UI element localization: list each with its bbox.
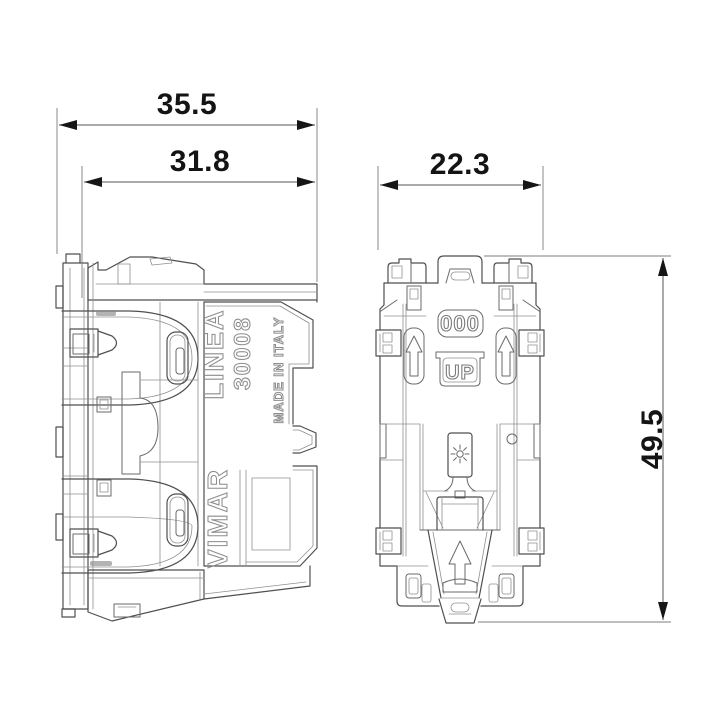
- side-view: LINEA 30008 MADE IN ITALY VIMAR: [56, 254, 317, 621]
- up-arrow-panel-right: [496, 328, 516, 384]
- front-view: 000 UP: [376, 256, 544, 623]
- engraving-origin: MADE IN ITALY: [271, 317, 286, 424]
- rocker-crossbar: [437, 497, 483, 530]
- screw-hole: [507, 434, 517, 444]
- direction-arrow-icon: [449, 541, 471, 584]
- lower-mechanism: [422, 530, 498, 602]
- up-arrow-panel-left: [404, 328, 424, 384]
- dim-value-recess-depth: 31.8: [170, 145, 230, 178]
- arrowhead: [380, 180, 398, 190]
- up-arrow-icon: [406, 336, 422, 376]
- dim-value-height: 49.5: [636, 409, 669, 469]
- side-view-contact-pocket-bottom: [62, 479, 198, 573]
- arrowhead: [297, 177, 315, 187]
- engraving-brand: VIMAR: [202, 468, 233, 568]
- marking-000-badge: 000: [438, 310, 483, 337]
- arrowhead: [59, 120, 77, 130]
- marking-000: 000: [440, 311, 480, 336]
- marking-up: UP: [445, 362, 475, 384]
- extension-line: [57, 108, 317, 282]
- arrowhead: [84, 177, 102, 187]
- tiny-engraving-mark: [96, 311, 116, 316]
- arrowhead: [658, 602, 668, 620]
- arrowhead: [523, 180, 541, 190]
- dim-value-width: 22.3: [430, 148, 490, 181]
- lamp-plate: [445, 433, 475, 498]
- up-arrow-icon: [498, 336, 514, 376]
- dim-width: 22.3: [378, 148, 543, 250]
- arrowhead: [658, 258, 668, 276]
- dim-value-overall-depth: 35.5: [157, 88, 217, 121]
- tiny-engraving-mark: [90, 561, 112, 566]
- lamp-icon: [451, 445, 469, 463]
- marking-up-badge: UP: [436, 352, 484, 386]
- drawing-canvas: LINEA 30008 MADE IN ITALY VIMAR: [0, 0, 720, 720]
- dim-recess-depth: 31.8: [82, 145, 315, 298]
- engraving-series: LINEA: [199, 309, 229, 400]
- engraving-model: 30008: [229, 316, 255, 390]
- side-view-slot-top: [167, 332, 188, 384]
- side-view-contact-pocket-top: [62, 311, 198, 405]
- dimension-drawing: LINEA 30008 MADE IN ITALY VIMAR: [0, 0, 720, 720]
- side-view-slot-bottom: [167, 494, 188, 546]
- arrowhead: [297, 120, 315, 130]
